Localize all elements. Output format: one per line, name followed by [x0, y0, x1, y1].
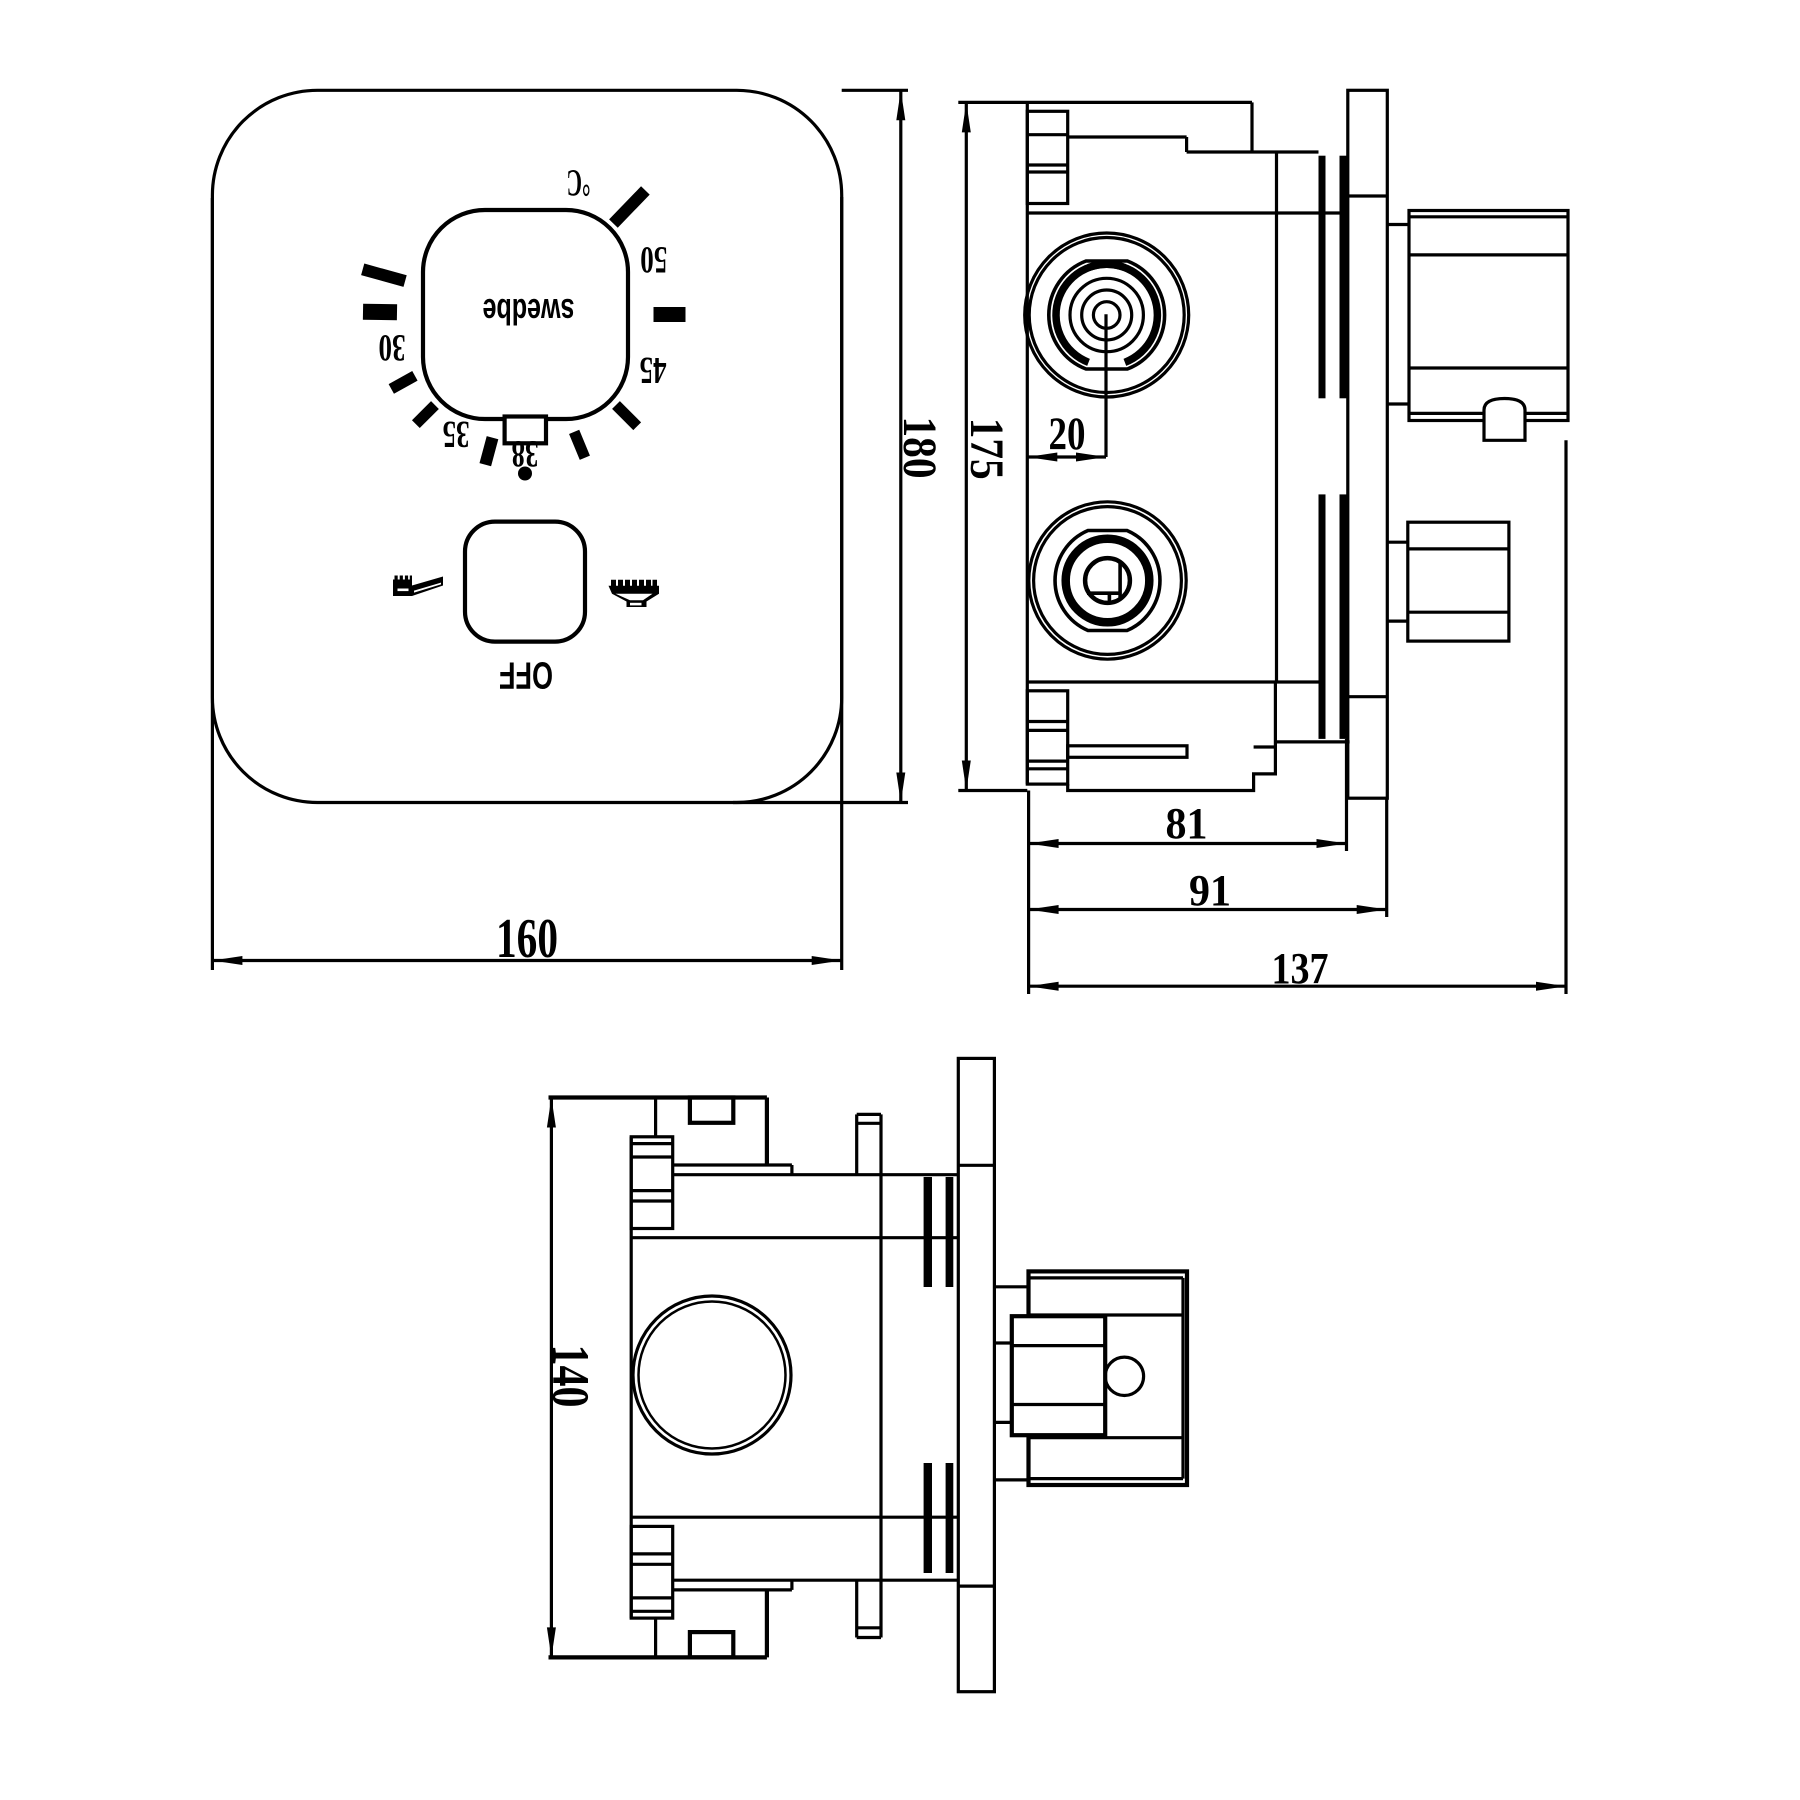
svg-text:OFF: OFF [499, 654, 553, 696]
svg-text:20: 20 [1049, 408, 1086, 460]
svg-text:140: 140 [541, 1345, 599, 1408]
svg-text:swedbe: swedbe [483, 291, 575, 332]
svg-text:35: 35 [443, 413, 470, 455]
svg-text:50: 50 [640, 239, 667, 281]
svg-text:°C: °C [567, 162, 591, 204]
svg-text:30: 30 [379, 327, 406, 369]
svg-text:81: 81 [1166, 799, 1208, 848]
svg-text:180: 180 [893, 417, 946, 479]
svg-text:175: 175 [960, 418, 1013, 480]
svg-text:45: 45 [640, 349, 667, 391]
svg-text:91: 91 [1189, 866, 1231, 915]
svg-text:160: 160 [496, 908, 558, 970]
svg-text:137: 137 [1272, 944, 1329, 993]
